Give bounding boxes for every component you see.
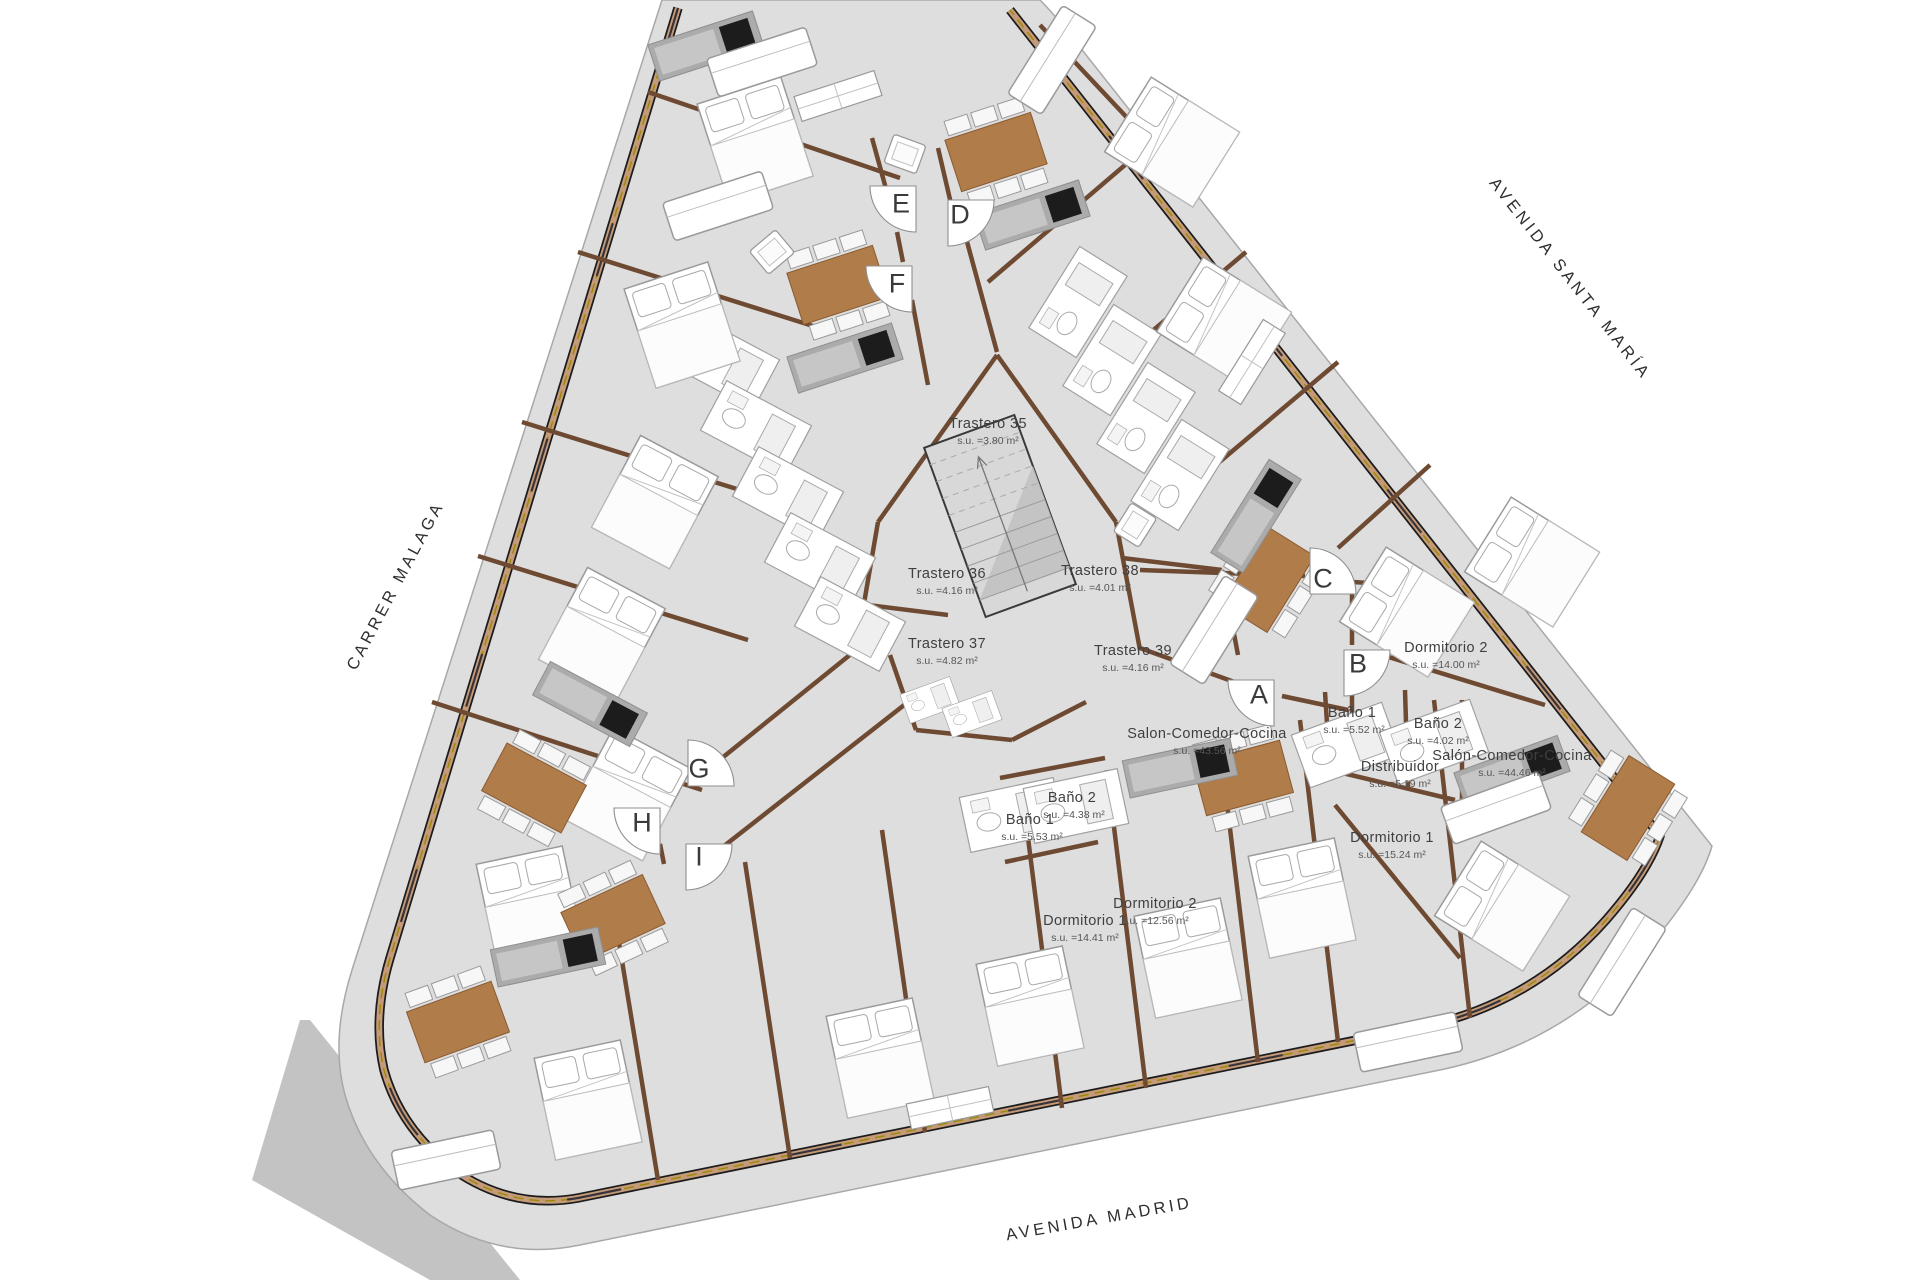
room-name: Dormitorio 1 [1350, 830, 1434, 846]
room-area: s.u. =4.16 m² [1102, 662, 1164, 674]
room-label-trastero-36: Trastero 36 s.u. =4.16 m² [908, 566, 986, 597]
entrance-letter-d: D [950, 199, 970, 229]
room-label-trastero-35: Trastero 35 s.u. =3.80 m² [949, 416, 1027, 447]
floor-plan-canvas: E D F C B A G H I Trastero 35 s.u. =3.80… [0, 0, 1920, 1280]
room-area: s.u. =14.00 m² [1412, 659, 1480, 671]
room-area: s.u. =44.46 m² [1478, 767, 1546, 779]
entrance-letter-a: A [1250, 679, 1268, 709]
room-area: s.u. =4.16 m² [916, 585, 978, 597]
room-area: s.u. =4.38 m² [1043, 809, 1105, 821]
room-name: Dormitorio 2 [1404, 640, 1488, 656]
floor-plan-svg: E D F C B A G H I Trastero 35 s.u. =3.80… [0, 0, 1920, 1280]
room-area: s.u. =5.52 m² [1323, 724, 1385, 736]
room-name: Salón-Comedor-Cocina [1432, 748, 1592, 764]
room-name: Trastero 37 [908, 636, 986, 652]
entrance-letter-h: H [632, 807, 652, 837]
room-label-trastero-37: Trastero 37 s.u. =4.82 m² [908, 636, 986, 667]
room-label-dormitorio1-b: Dormitorio 1 s.u. =15.24 m² [1350, 830, 1434, 861]
room-area: s.u. =15.24 m² [1358, 849, 1426, 861]
entrance-letter-f: F [889, 268, 906, 298]
room-area: s.u. =5.53 m² [1001, 831, 1063, 843]
room-name: Dormitorio 1 [1043, 913, 1127, 929]
entrance-letter-e: E [892, 188, 910, 218]
entrance-letter-g: G [688, 753, 709, 783]
room-area: s.u. =12.56 m² [1121, 915, 1189, 927]
room-name: Salon-Comedor-Cocina [1127, 726, 1287, 742]
room-name: Dormitorio 2 [1113, 896, 1197, 912]
room-label-dormitorio2-a: Dormitorio 2 s.u. =12.56 m² [1113, 896, 1197, 927]
street-label-avenida-santa-maria: AVENIDA SANTA MARÍA [1486, 174, 1656, 384]
room-name: Trastero 35 [949, 416, 1027, 432]
room-area: s.u. =4.82 m² [916, 655, 978, 667]
room-area: s.u. =4.01 m² [1069, 582, 1131, 594]
room-label-trastero-39: Trastero 39 s.u. =4.16 m² [1094, 643, 1172, 674]
room-area: s.u. =4.02 m² [1407, 735, 1469, 747]
street-label-carrer-malaga: CARRER MALAGA [343, 498, 447, 673]
street-label-avenida-madrid: AVENIDA MADRID [1005, 1194, 1194, 1245]
room-area: s.u. =3.80 m² [957, 435, 1019, 447]
room-label-bano2-a: Baño 2 s.u. =4.38 m² [1043, 790, 1105, 821]
room-area: s.u. =43.56 m² [1173, 745, 1241, 757]
room-label-dormitorio2-b: Dormitorio 2 s.u. =14.00 m² [1404, 640, 1488, 671]
room-label-bano2-b: Baño 2 s.u. =4.02 m² [1407, 716, 1469, 747]
room-name: Distribuidor [1361, 759, 1439, 775]
room-name: Baño 2 [1414, 716, 1462, 732]
room-name: Trastero 36 [908, 566, 986, 582]
entrance-letter-b: B [1349, 648, 1367, 678]
room-name: Baño 2 [1048, 790, 1096, 806]
room-area: s.u. =14.41 m² [1051, 932, 1119, 944]
room-label-dormitorio1-a: Dormitorio 1 s.u. =14.41 m² [1043, 913, 1127, 944]
room-name: Trastero 38 [1061, 563, 1139, 579]
room-label-distribuidor: Distribuidor s.u. =5.19 m² [1361, 759, 1439, 790]
entrance-letter-c: C [1313, 563, 1333, 593]
room-label-bano1-b: Baño 1 s.u. =5.52 m² [1323, 705, 1385, 736]
room-name: Baño 1 [1328, 705, 1376, 721]
room-label-trastero-38: Trastero 38 s.u. =4.01 m² [1061, 563, 1139, 594]
room-area: s.u. =5.19 m² [1369, 778, 1431, 790]
room-name: Trastero 39 [1094, 643, 1172, 659]
entrance-letter-i: I [695, 841, 703, 871]
